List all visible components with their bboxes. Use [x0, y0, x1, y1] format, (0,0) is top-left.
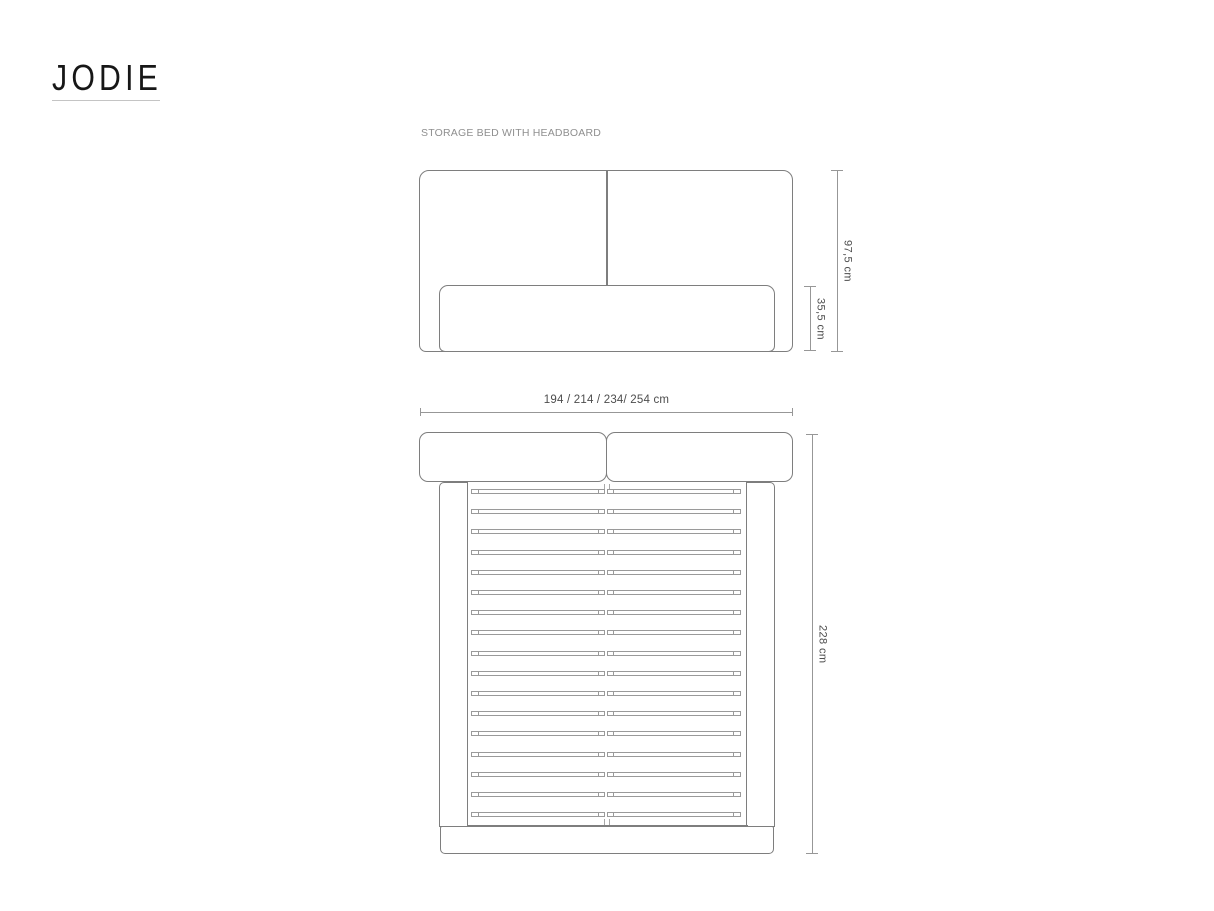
slat-end-cap	[598, 530, 599, 533]
slat-bar	[471, 529, 605, 534]
slat-end-cap	[598, 753, 599, 756]
slat-end-cap	[598, 611, 599, 614]
dimension-tick	[792, 408, 793, 416]
slat-bar	[471, 691, 605, 696]
slat-end-cap	[598, 732, 599, 735]
slat-bar	[471, 792, 605, 797]
slat-bar	[607, 590, 741, 595]
slat-end-cap	[478, 712, 479, 715]
slat-end-cap	[613, 773, 614, 776]
slat-end-cap	[478, 652, 479, 655]
slat-row	[471, 731, 741, 736]
slat-end-cap	[598, 773, 599, 776]
slat-end-cap	[613, 490, 614, 493]
slat-bar	[471, 509, 605, 514]
slat-bar	[471, 630, 605, 635]
slat-row	[471, 711, 741, 716]
slat-end-cap	[478, 551, 479, 554]
slat-end-cap	[478, 732, 479, 735]
slat-bar	[607, 651, 741, 656]
slat-bar	[607, 610, 741, 615]
slat-end-cap	[478, 510, 479, 513]
slat-bar	[607, 752, 741, 757]
slat-end-cap	[598, 793, 599, 796]
slat-end-cap	[733, 712, 734, 715]
slat-end-cap	[613, 712, 614, 715]
slat-end-cap	[733, 813, 734, 816]
center-rail-stub	[609, 819, 610, 825]
slat-end-cap	[733, 591, 734, 594]
slat-end-cap	[478, 631, 479, 634]
slat-end-cap	[733, 490, 734, 493]
slat-bar	[471, 772, 605, 777]
slat-bar	[471, 550, 605, 555]
slat-bar	[607, 570, 741, 575]
slat-end-cap	[478, 692, 479, 695]
slat-end-cap	[613, 672, 614, 675]
slat-row	[471, 772, 741, 777]
bed-frame-front	[439, 285, 775, 352]
slat-end-cap	[598, 571, 599, 574]
brand-underline	[52, 100, 160, 101]
slat-row	[471, 529, 741, 534]
slat-bar	[607, 731, 741, 736]
slat-end-cap	[598, 813, 599, 816]
slat-end-cap	[733, 793, 734, 796]
slat-row	[471, 610, 741, 615]
slat-end-cap	[613, 611, 614, 614]
slat-row	[471, 691, 741, 696]
slat-row	[471, 570, 741, 575]
side-rail-right	[746, 482, 775, 827]
slat-end-cap	[613, 591, 614, 594]
slat-end-cap	[478, 591, 479, 594]
slat-bar	[471, 610, 605, 615]
slat-end-cap	[613, 732, 614, 735]
diagram-title: STORAGE BED WITH HEADBOARD	[421, 127, 601, 139]
slat-end-cap	[733, 631, 734, 634]
dimension-line	[812, 434, 813, 854]
slat-end-cap	[478, 773, 479, 776]
slat-end-cap	[613, 571, 614, 574]
dimension-tick	[420, 408, 421, 416]
headboard-height-label: 97,5 cm	[840, 170, 855, 352]
slat-bar	[607, 671, 741, 676]
dimension-line	[420, 412, 793, 413]
slat-end-cap	[613, 551, 614, 554]
slat-end-cap	[478, 530, 479, 533]
dimension-line	[810, 286, 811, 351]
slat-end-cap	[613, 813, 614, 816]
slat-row	[471, 590, 741, 595]
slat-row	[471, 792, 741, 797]
slat-bar	[607, 630, 741, 635]
slat-end-cap	[598, 652, 599, 655]
slat-row	[471, 752, 741, 757]
slat-row	[471, 509, 741, 514]
slat-end-cap	[733, 773, 734, 776]
footboard	[440, 826, 774, 854]
slat-end-cap	[613, 652, 614, 655]
frame-height-label: 35,5 cm	[813, 280, 828, 358]
headboard-top-left-panel	[419, 432, 607, 482]
slat-end-cap	[598, 712, 599, 715]
slat-bar	[471, 812, 605, 817]
slat-bar	[607, 792, 741, 797]
slat-end-cap	[478, 813, 479, 816]
slat-end-cap	[733, 530, 734, 533]
slat-end-cap	[478, 793, 479, 796]
slat-bar	[471, 489, 605, 494]
slat-bar	[607, 691, 741, 696]
slat-end-cap	[733, 571, 734, 574]
center-rail-stub	[604, 819, 605, 825]
dimension-line	[837, 170, 838, 352]
slat-end-cap	[478, 672, 479, 675]
length-label: 228 cm	[815, 434, 830, 854]
slat-bar	[607, 509, 741, 514]
slat-bar	[607, 529, 741, 534]
slat-bar	[607, 772, 741, 777]
slat-bar	[607, 711, 741, 716]
slat-end-cap	[613, 692, 614, 695]
slat-row	[471, 550, 741, 555]
slat-end-cap	[733, 611, 734, 614]
slat-end-cap	[613, 753, 614, 756]
slat-end-cap	[478, 611, 479, 614]
headboard-top-right-panel	[606, 432, 793, 482]
slat-row	[471, 651, 741, 656]
slat-bar	[471, 590, 605, 595]
slat-end-cap	[598, 692, 599, 695]
diagram-canvas: JODIE STORAGE BED WITH HEADBOARD 97,5 cm…	[0, 0, 1214, 911]
slat-end-cap	[733, 551, 734, 554]
slat-row	[471, 489, 741, 494]
slat-end-cap	[598, 591, 599, 594]
slat-bar	[471, 651, 605, 656]
slat-end-cap	[613, 530, 614, 533]
slat-end-cap	[733, 753, 734, 756]
slat-end-cap	[733, 510, 734, 513]
side-rail-left	[439, 482, 468, 827]
slat-bar	[471, 731, 605, 736]
slat-end-cap	[598, 631, 599, 634]
slat-bar	[471, 570, 605, 575]
slat-end-cap	[733, 672, 734, 675]
width-label: 194 / 214 / 234/ 254 cm	[420, 394, 793, 406]
slat-bar	[607, 550, 741, 555]
slat-end-cap	[478, 571, 479, 574]
slat-bar	[471, 671, 605, 676]
slat-bar	[471, 711, 605, 716]
slat-end-cap	[478, 753, 479, 756]
slat-end-cap	[598, 672, 599, 675]
slat-end-cap	[598, 551, 599, 554]
slat-end-cap	[733, 732, 734, 735]
slat-end-cap	[598, 510, 599, 513]
slat-row	[471, 671, 741, 676]
slat-end-cap	[613, 631, 614, 634]
slat-bar	[607, 489, 741, 494]
slat-row	[471, 630, 741, 635]
slat-end-cap	[733, 652, 734, 655]
slat-end-cap	[613, 793, 614, 796]
slat-end-cap	[733, 692, 734, 695]
slat-end-cap	[598, 490, 599, 493]
brand-logo: JODIE	[52, 57, 162, 99]
slat-end-cap	[613, 510, 614, 513]
slat-bar	[607, 812, 741, 817]
slat-row	[471, 812, 741, 817]
headboard-split-line	[606, 171, 608, 285]
slat-end-cap	[478, 490, 479, 493]
slat-bar	[471, 752, 605, 757]
